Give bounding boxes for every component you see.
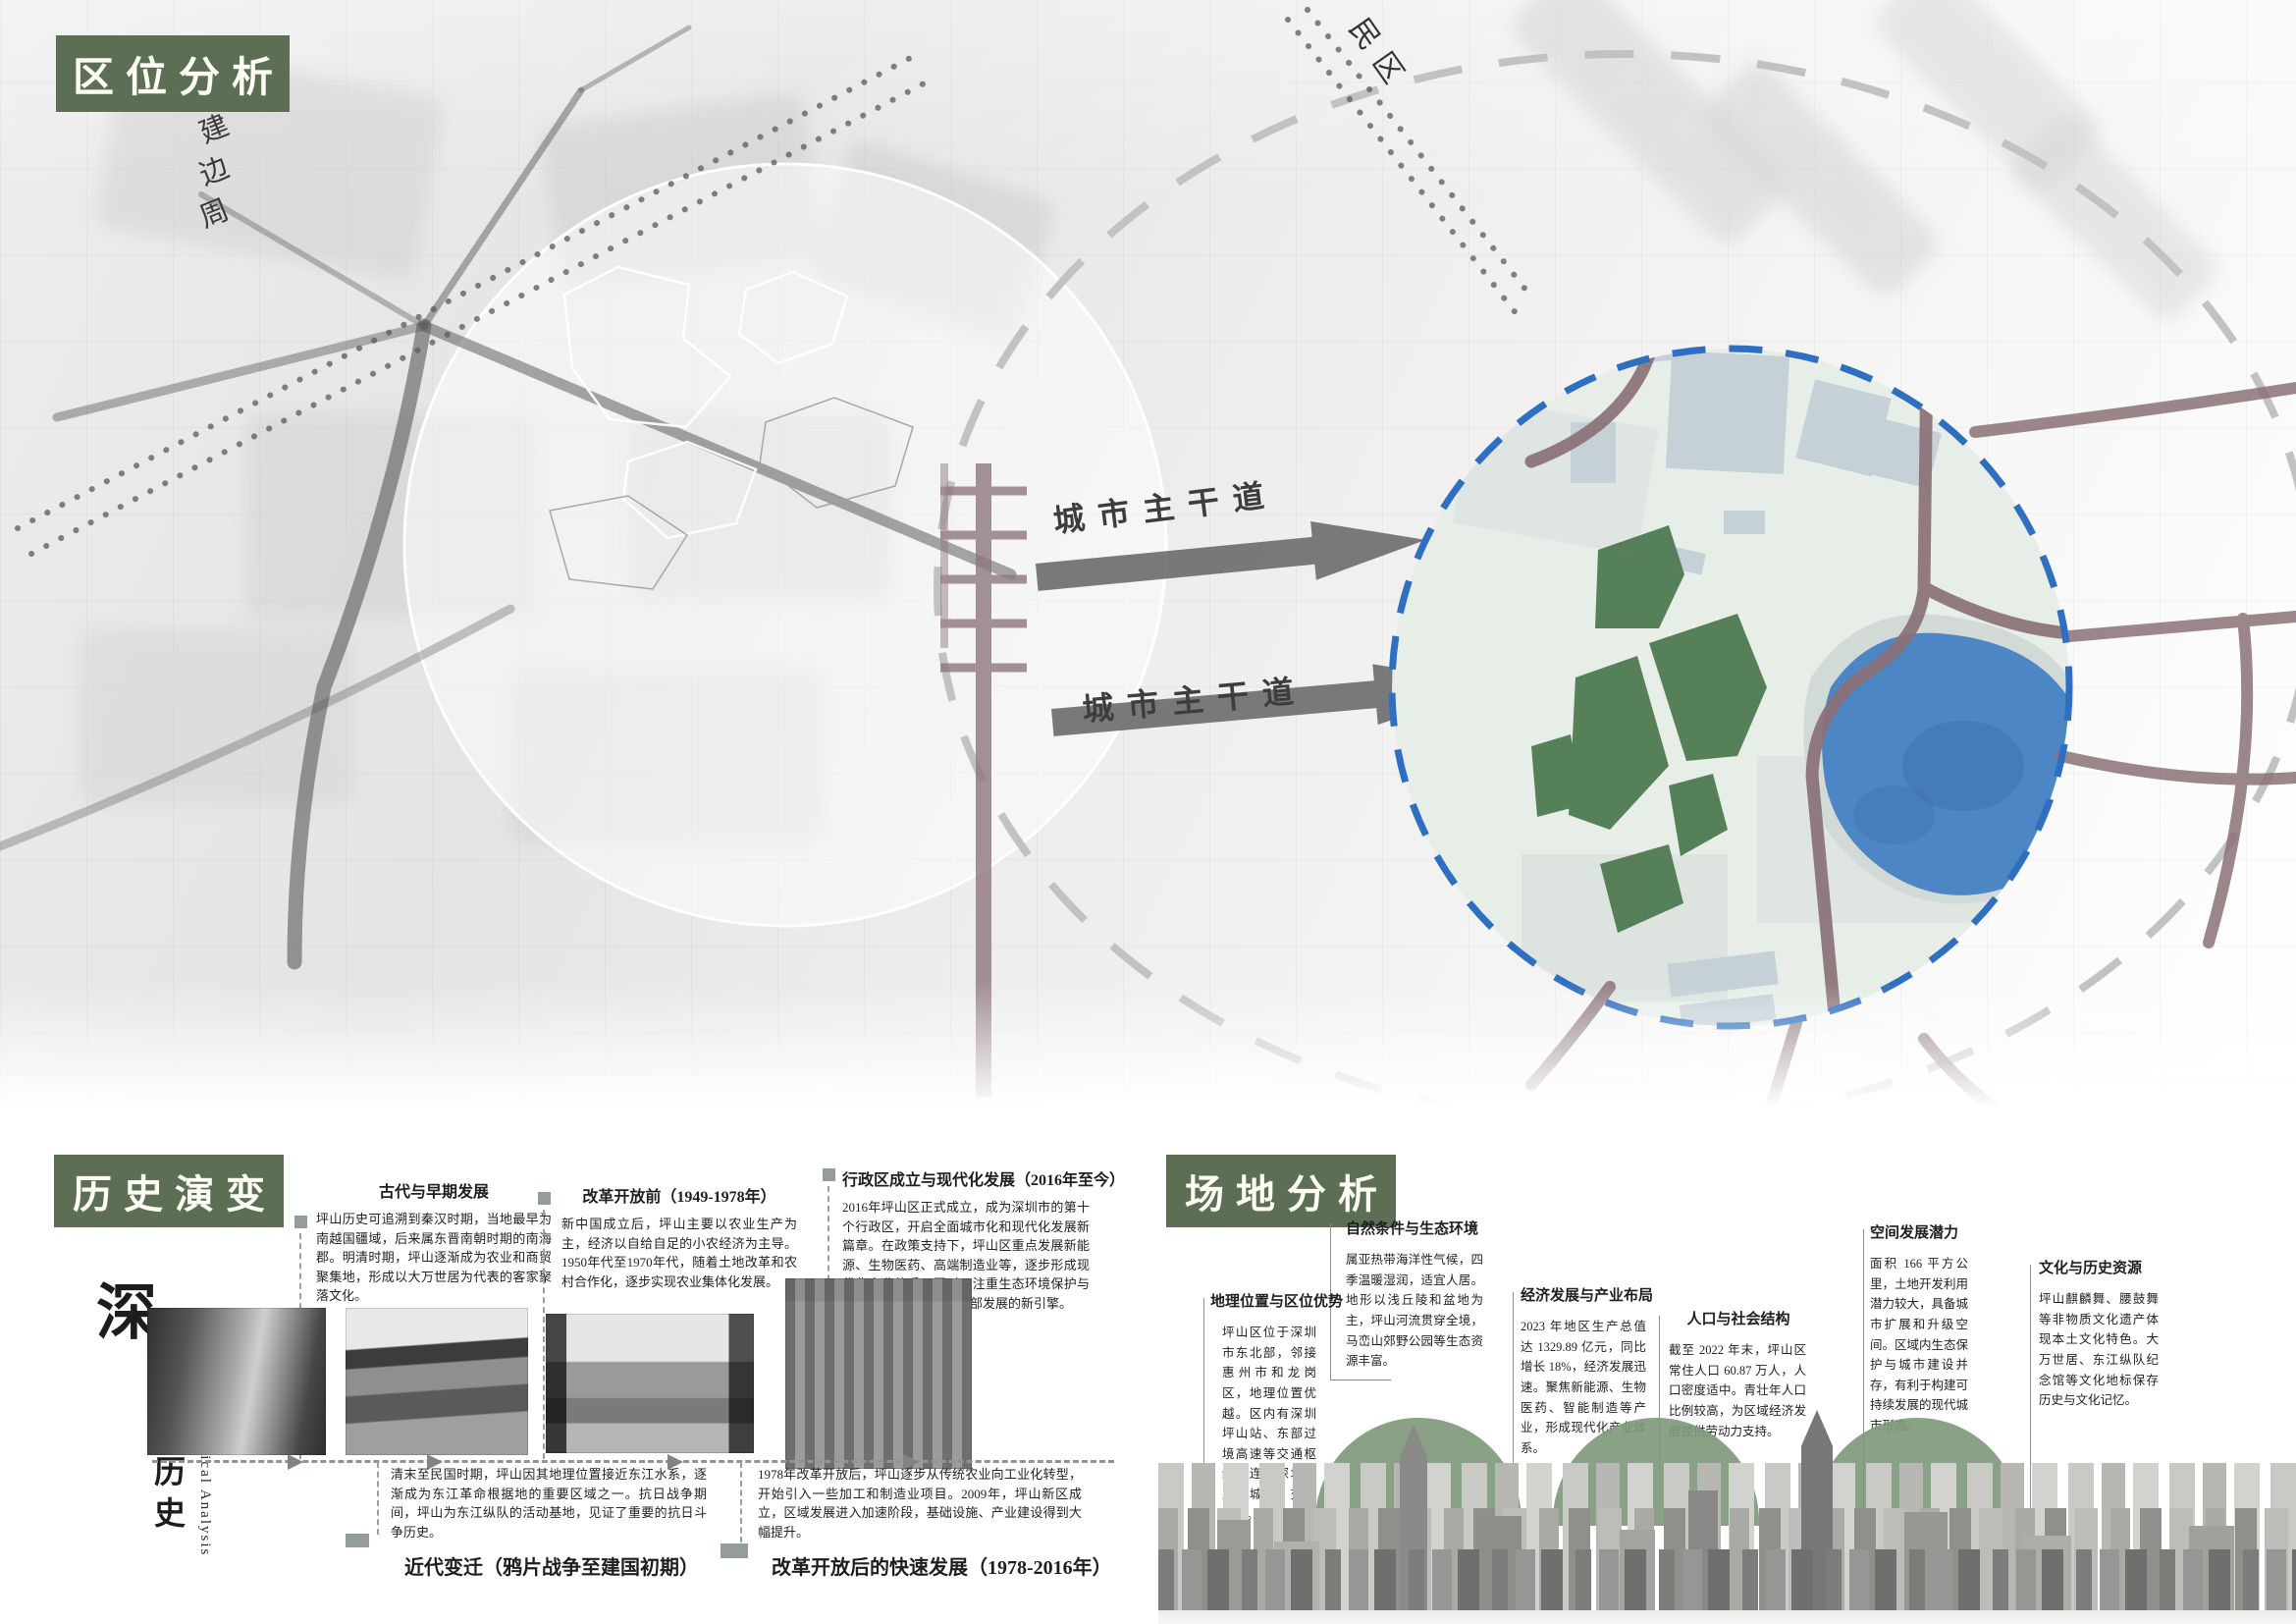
aspect-title: 人口与社会结构 — [1669, 1308, 1808, 1328]
photo-hakka-rooftops — [346, 1308, 528, 1455]
aspect-text: 坪山麒麟舞、腰鼓舞等非物质文化遗产体现本土文化特色。大万世居、东江纵队纪念馆等文… — [2039, 1289, 2159, 1411]
timeline-dash — [740, 1462, 742, 1543]
section-title-history: 历史演变 — [54, 1155, 284, 1227]
timeline-marker — [538, 1192, 551, 1205]
history-period-rapid-development: 1978年改革开放后，坪山逐步从传统农业向工业化转型，开始引入一些加工和制造业项… — [758, 1465, 1082, 1580]
timeline-marker — [346, 1534, 369, 1547]
aspect-spatial: 空间发展潜力 面积 166 平方公里，土地开发利用潜力较大，具备城市扩展和升级空… — [1870, 1221, 1972, 1436]
timeline-marker — [294, 1216, 307, 1228]
section-title-location: 区位分析 — [56, 35, 290, 112]
aspect-culture: 文化与历史资源 坪山麒麟舞、腰鼓舞等非物质文化遗产体现本土文化特色。大万世居、东… — [2039, 1257, 2161, 1411]
poster: 区位分析 城市主干道 城市主干道 民区 建 边 周 历史演变 深 圳坪山历史 P… — [0, 0, 2296, 1624]
section-title-site: 场地分析 — [1166, 1155, 1396, 1227]
period-text: 1978年改革开放后，坪山逐步从传统农业向工业化转型，开始引入一些加工和制造业项… — [758, 1465, 1082, 1542]
aspect-nature: 自然条件与生态环境 属亚热带海洋性气候，四季温暖湿润，适宜人居。地形以浅丘陵和盆… — [1346, 1218, 1485, 1372]
waterfront — [1158, 1610, 2296, 1624]
section-title-site-text: 场地分析 — [1173, 1163, 1389, 1219]
aspect-title: 空间发展潜力 — [1870, 1221, 1972, 1242]
history-period-modern-transition: 清末至民国时期，坪山因其地理位置接近东江水系，逐渐成为东江革命根据地的重要区域之… — [391, 1465, 707, 1580]
period-text: 新中国成立后，坪山主要以农业生产为主，经济以自给自足的小农经济为主导。1950年… — [561, 1215, 797, 1291]
period-text: 清末至民国时期，坪山因其地理位置接近东江水系，逐渐成为东江革命根据地的重要区域之… — [391, 1465, 707, 1542]
period-title: 古代与早期发展 — [316, 1178, 552, 1202]
photo-old-street — [546, 1314, 754, 1453]
aspect-connector — [1330, 1380, 1391, 1380]
timeline-arrow-icon — [288, 1454, 303, 1470]
aspect-title: 经济发展与产业布局 — [1521, 1284, 1650, 1305]
location-map — [0, 0, 2296, 1119]
history-period-pre-reform: 改革开放前（1949-1978年） 新中国成立后，坪山主要以农业生产为主，经济以… — [561, 1183, 797, 1291]
skyline-front — [1158, 1549, 2296, 1610]
photo-modern-building — [785, 1278, 972, 1469]
period-title: 行政区成立与现代化发展（2016年至今） — [842, 1166, 1090, 1190]
aspect-title: 自然条件与生态环境 — [1346, 1218, 1485, 1238]
aspect-title: 文化与历史资源 — [2039, 1257, 2161, 1277]
timeline-dash — [543, 1210, 545, 1459]
map-fade — [0, 982, 2296, 1119]
section-title-location-text: 区位分析 — [61, 44, 285, 104]
history-period-ancient: 古代与早期发展 坪山历史可追溯到秦汉时期，当地最早为南越国疆域，后来属东晋南朝时… — [316, 1178, 552, 1306]
timeline-marker — [721, 1543, 748, 1558]
aspect-title: 地理位置与区位优势 — [1210, 1290, 1320, 1311]
photo-old-village-lane — [147, 1308, 326, 1455]
period-title: 改革开放后的快速发展（1978-2016年） — [772, 1551, 1082, 1580]
aspect-text: 属亚热带海洋性气候，四季温暖湿润，适宜人居。地形以浅丘陵和盆地为主，坪山河流贯穿… — [1346, 1250, 1483, 1372]
period-text: 坪山历史可追溯到秦汉时期，当地最早为南越国疆域，后来属东晋南朝时期的南海郡。明清… — [316, 1210, 552, 1306]
peripheral-area-label: 建 边 周 — [200, 116, 229, 229]
timeline-marker — [823, 1168, 835, 1181]
period-title: 改革开放前（1949-1978年） — [561, 1183, 797, 1207]
peripheral-char: 建 — [196, 112, 234, 149]
timeline-dash — [377, 1462, 379, 1535]
city-skyline-photo — [1158, 1410, 2296, 1624]
period-title: 近代变迁（鸦片战争至建国初期） — [404, 1551, 707, 1580]
site-plan — [1392, 291, 2100, 1041]
location-analysis-section: 区位分析 城市主干道 城市主干道 民区 建 边 周 — [0, 0, 2296, 1119]
aspect-text: 面积 166 平方公里，土地开发利用潜力较大，具备城市扩展和升级空间。区域内生态… — [1870, 1254, 1968, 1436]
lake-depth — [1853, 785, 1936, 844]
focus-circle — [404, 164, 1166, 926]
section-title-history-text: 历史演变 — [61, 1163, 277, 1219]
peripheral-char: 边 — [196, 154, 234, 191]
peripheral-char: 周 — [196, 196, 234, 234]
